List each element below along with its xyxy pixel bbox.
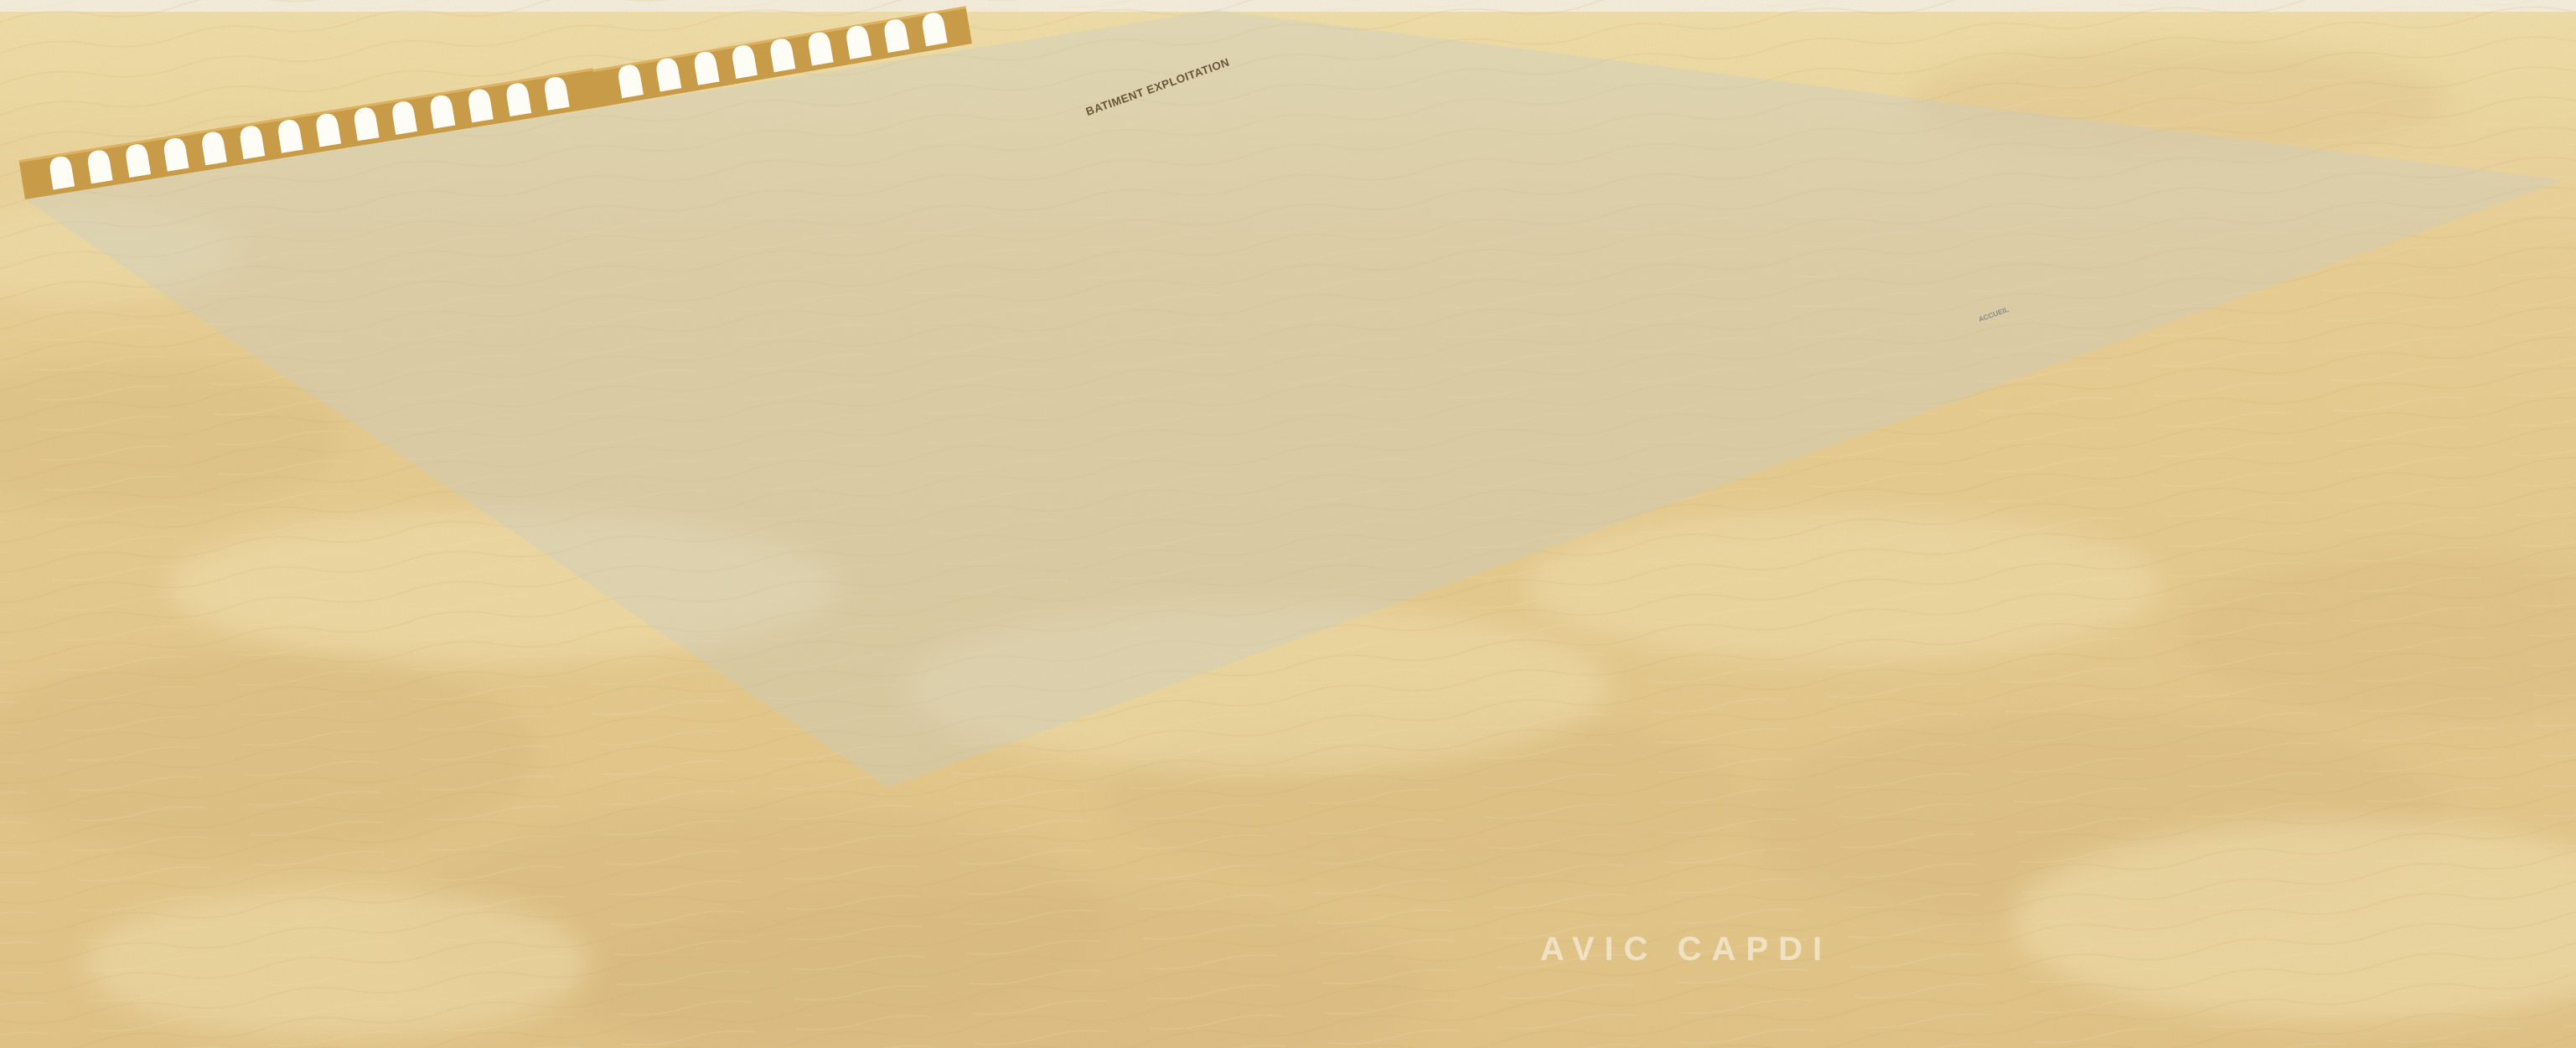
rendering-frame: BATIMENT EXPLOITATION ACCUEIL AVIC CAPDI [0,0,2576,1048]
compound-rendering [0,0,2576,1048]
watermark: AVIC CAPDI [1540,931,1832,968]
rendering-canvas: BATIMENT EXPLOITATION ACCUEIL AVIC CAPDI [0,0,2576,1048]
